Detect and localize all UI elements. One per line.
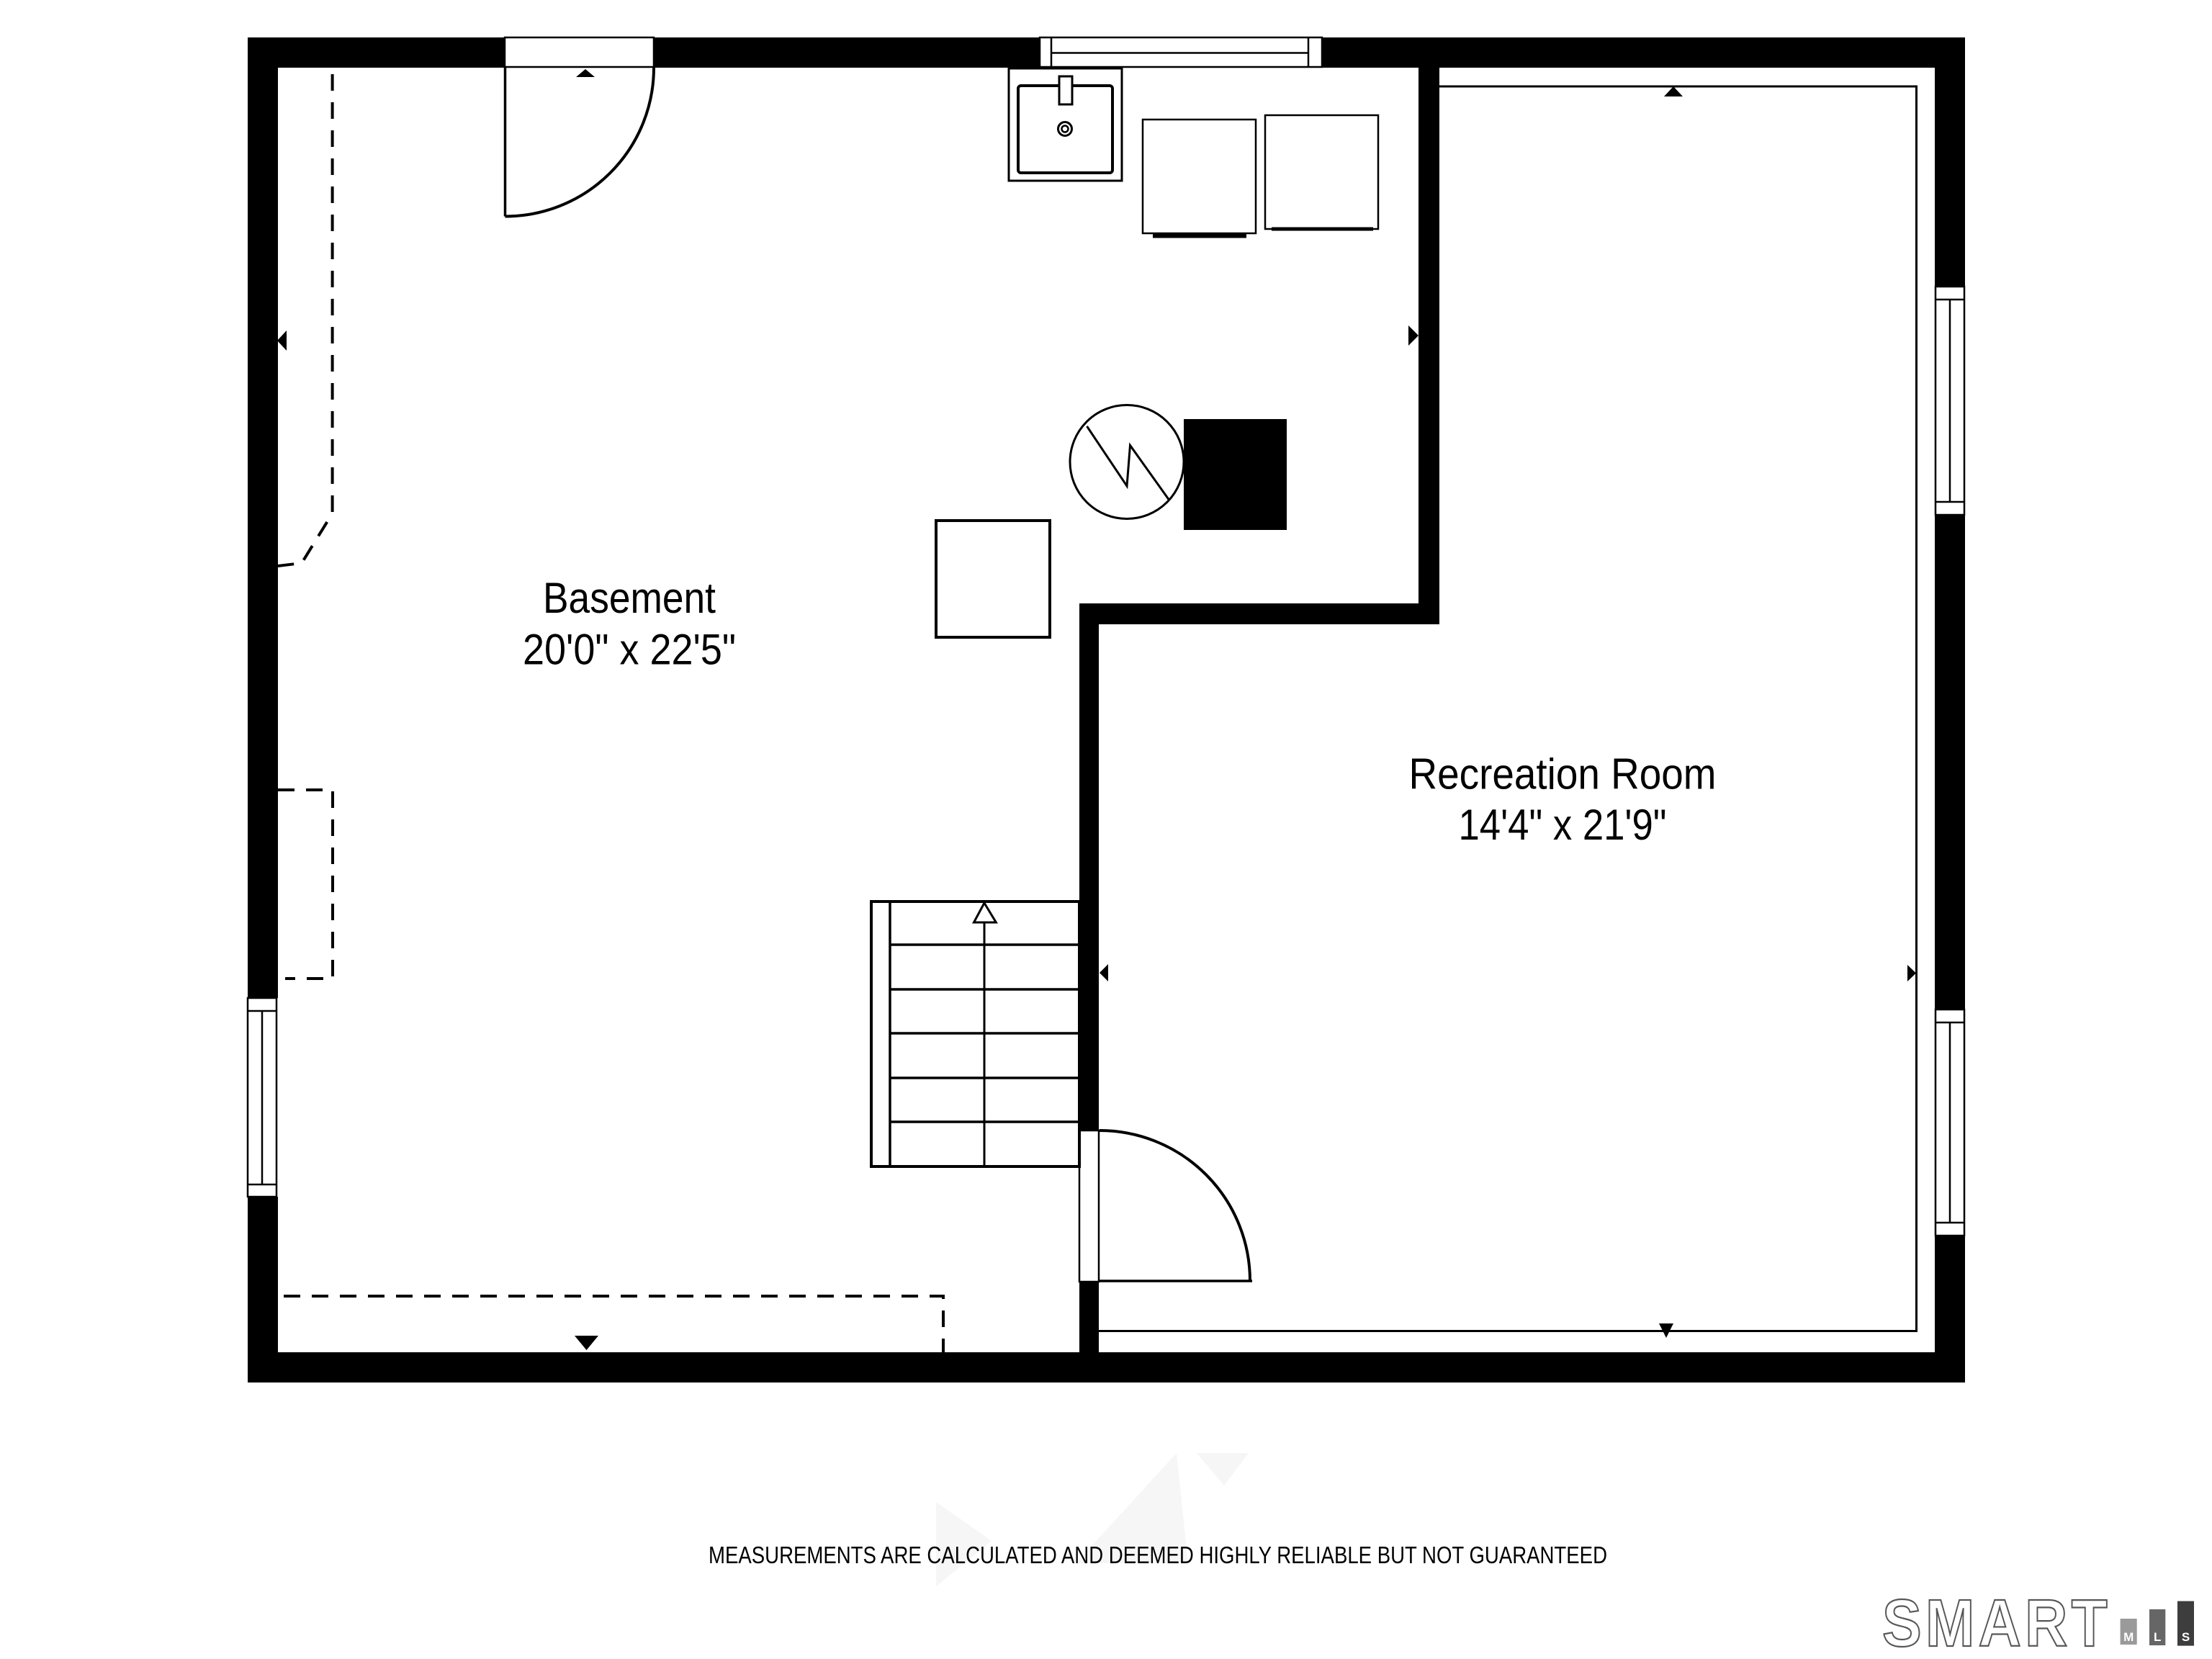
svg-text:Basement: Basement — [543, 574, 716, 622]
svg-text:Recreation Room: Recreation Room — [1409, 750, 1717, 799]
svg-text:M: M — [2123, 1630, 2134, 1644]
svg-text:SMART: SMART — [1882, 1586, 2111, 1659]
svg-text:20'0" x 22'5": 20'0" x 22'5" — [523, 626, 736, 674]
svg-text:S: S — [2182, 1630, 2190, 1644]
svg-text:14'4" x 21'9": 14'4" x 21'9" — [1459, 801, 1667, 849]
svg-text:MEASUREMENTS ARE CALCULATED AN: MEASUREMENTS ARE CALCULATED AND DEEMED H… — [709, 1542, 1607, 1568]
svg-text:L: L — [2154, 1630, 2161, 1644]
